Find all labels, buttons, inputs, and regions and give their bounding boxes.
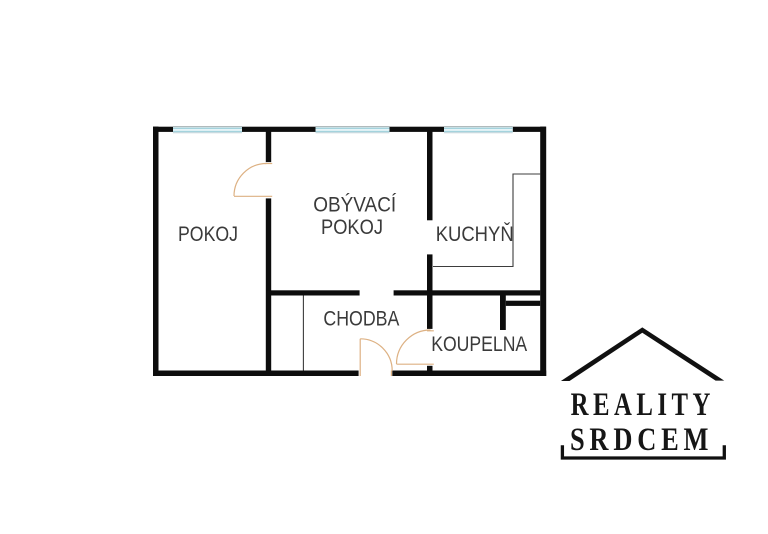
svg-text:POKOJ: POKOJ <box>178 223 238 246</box>
svg-text:POKOJ: POKOJ <box>321 216 383 239</box>
svg-text:KUCHYŇ: KUCHYŇ <box>436 223 514 246</box>
svg-text:SRDCEM: SRDCEM <box>570 422 713 458</box>
svg-text:KOUPELNA: KOUPELNA <box>431 333 527 356</box>
svg-text:OBÝVACÍ: OBÝVACÍ <box>313 193 396 216</box>
svg-text:CHODBA: CHODBA <box>323 308 399 331</box>
svg-text:REALITY: REALITY <box>571 387 715 423</box>
